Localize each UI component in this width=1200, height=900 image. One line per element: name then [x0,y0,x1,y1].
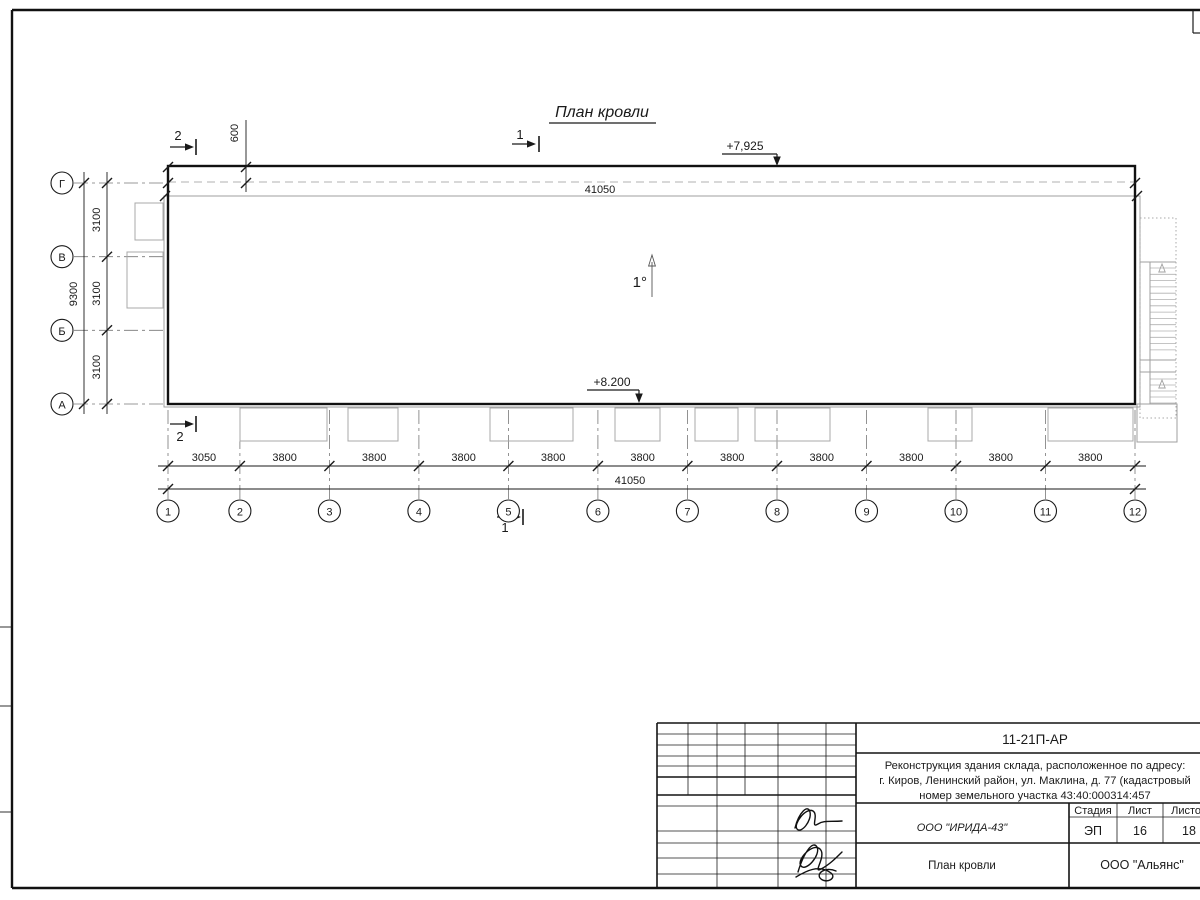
stair-lower-landing [1137,404,1177,442]
drawing-canvas: План кровли 600 41050 41050 9300 +7,925 [0,0,1200,900]
grid-bubble-column-label: 10 [950,507,962,519]
right-arrow-icon [527,140,536,147]
plan-title: План кровли [555,104,649,121]
section-mark-2-bottom: 2 [170,416,196,444]
drawing-sheet: План кровли 600 41050 41050 9300 +7,925 [0,0,1200,900]
roof-outline [168,166,1135,404]
dim-overhang: 600 [229,120,246,192]
slope-mark: 1° [633,255,656,297]
canopy-outline [695,408,738,441]
grid-bubble-column-label: 4 [416,507,422,519]
right-arrow-icon [185,420,194,427]
grid-bubble-column-label: 11 [1040,507,1051,519]
grid-bubble-column-label: 9 [863,507,869,519]
grid-bubble-column-label: 7 [684,507,690,519]
canopy-outline [928,408,972,441]
right-arrow-icon [185,143,194,150]
dim-bay-label: 3050 [192,452,216,464]
dim-bay-label: 3800 [630,452,654,464]
project-line-1: Реконструкция здания склада, расположенн… [885,760,1186,772]
canopy-outline [615,408,660,441]
dim-bay-label: 3800 [362,452,386,464]
dim-bay-label: 3800 [451,452,475,464]
canopy-outline [755,408,830,441]
grid-bubble-column-label: 3 [326,507,332,519]
title-block: 11-21П-АР Реконструкция здания склада, р… [657,723,1200,888]
dim-bay-label: 3800 [272,452,296,464]
elevation-top-label: +7,925 [726,139,763,153]
dim-left-segment-label: 3100 [91,281,103,305]
dim-overhang-label: 600 [229,124,241,142]
dim-left-segment-label: 3100 [91,355,103,379]
doc-number: 11-21П-АР [1002,732,1068,747]
building-wall-outline [164,196,1140,407]
canopy-outline [1048,408,1133,441]
stage-value: ЭП [1084,824,1102,838]
dim-bay-label: 3800 [1078,452,1102,464]
contractor-company: ООО "Альянс" [1100,858,1184,872]
sheet-header: Лист [1128,805,1152,817]
stage-header: Стадия [1074,805,1112,817]
grid-bubble-row-label: Б [58,326,65,338]
grid-bubble-column-label: 12 [1129,507,1141,519]
dim-total-bottom: 41050 [158,475,1146,489]
grid-bubble-column-label: 5 [505,507,511,519]
canopy-outline [135,203,163,240]
grid-bubble-column-label: 6 [595,507,601,519]
dim-bay-label: 3800 [541,452,565,464]
stair-up-arrow [1159,380,1165,388]
signature-razrabotal [795,809,842,830]
designer-company: ООО "ИРИДА-43" [917,822,1009,834]
canopy-outline [348,408,398,441]
dim-bay-label: 3800 [720,452,744,464]
sheets-total: 18 [1182,824,1196,838]
dim-total-bottom-label: 41050 [615,475,646,487]
slope-label: 1° [633,274,647,291]
grid-bubble-row-label: Г [59,179,65,191]
section-label: 2 [176,429,183,444]
signature-nkontr-gip [796,845,842,881]
elevation-top: +7,925 [722,139,781,166]
grid-bubble-row-label: А [58,400,66,412]
sheet-number: 16 [1133,824,1147,838]
dim-bay-label: 3800 [899,452,923,464]
project-line-3: номер земельного участка 43:40:000314:45… [919,790,1150,802]
elevation-bottom-label: +8.200 [593,375,630,389]
project-line-2: г. Киров, Ленинский район, ул. Маклина, … [879,775,1191,787]
down-arrow-icon [773,157,781,167]
section-mark-2-top: 2 [170,128,196,155]
section-mark-1-top: 1 [512,127,539,152]
elevation-bottom: +8.200 [587,375,643,403]
canopy-outline [127,252,163,308]
dim-left-segment-label: 3100 [91,208,103,232]
canopy-outline [490,408,573,441]
grid-bubble-column-label: 1 [165,507,171,519]
section-label: 2 [174,128,181,143]
grid-bubble-column-label: 8 [774,507,780,519]
section-label: 1 [516,127,523,142]
dim-total-top-label: 41050 [585,184,616,196]
sheets-header: Листов [1171,805,1200,817]
drawing-name: План кровли [928,860,996,872]
dim-left-total-label: 9300 [68,282,80,306]
grid-bubble-column-label: 2 [237,507,243,519]
external-stair [1137,218,1177,442]
dim-bay-label: 3800 [810,452,834,464]
down-arrow-icon [635,394,643,404]
canopy-outline [240,408,327,441]
grid-bubble-row-label: В [58,252,65,264]
generated-overlay: 123456789101112ГВБА305038003800380038003… [51,162,1146,522]
dim-bay-label: 3800 [989,452,1013,464]
